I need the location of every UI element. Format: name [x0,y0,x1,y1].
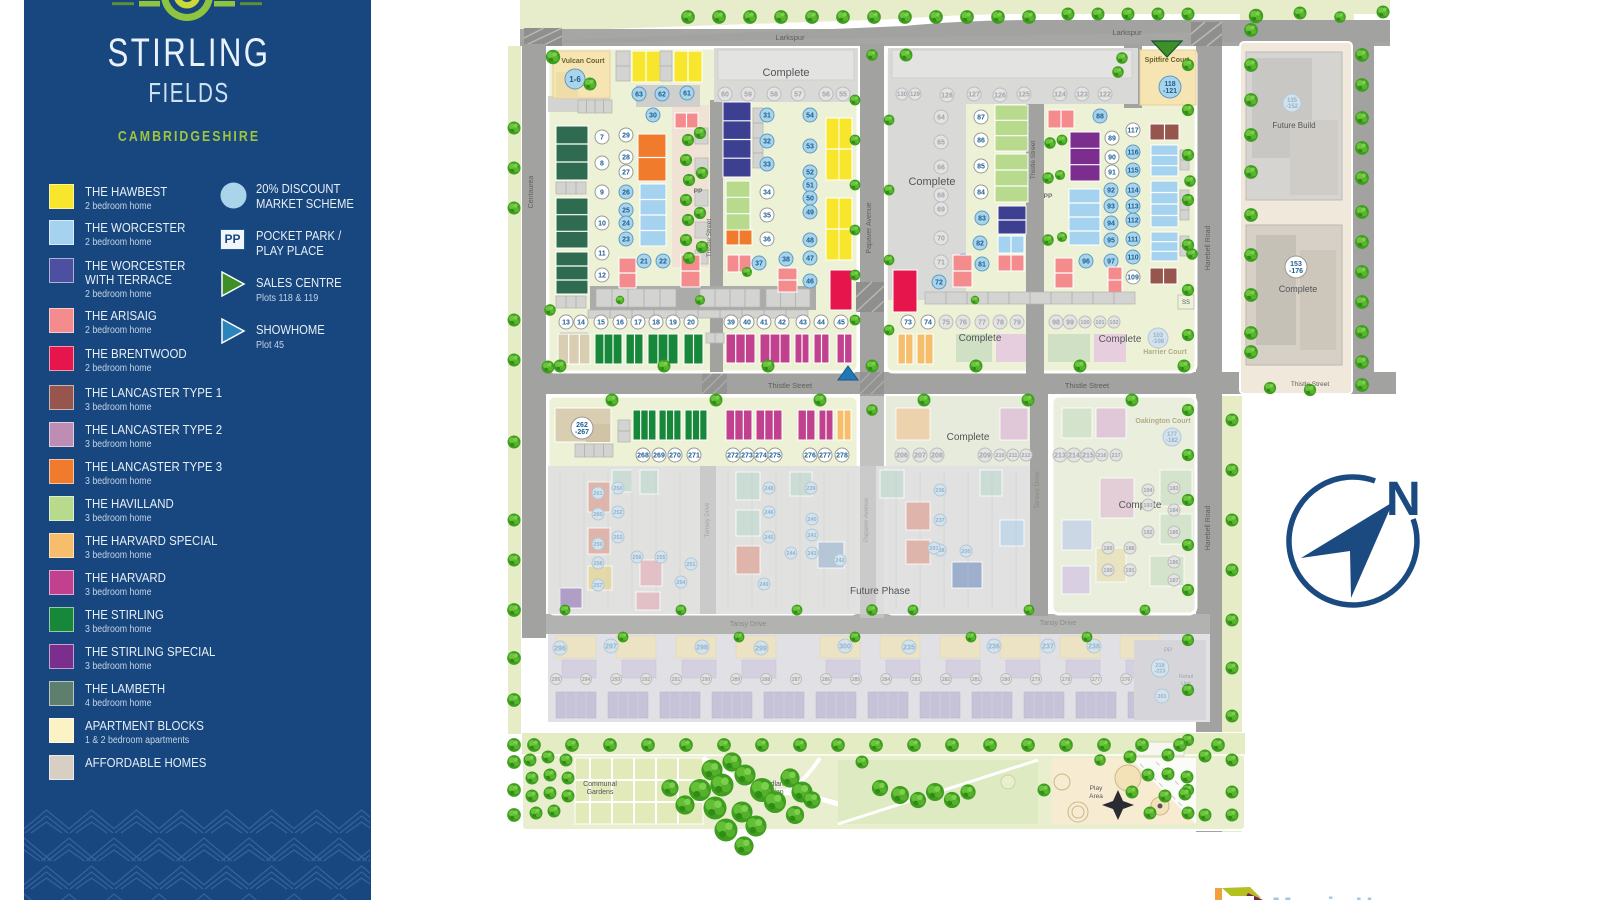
svg-text:290: 290 [702,677,711,683]
svg-text:74: 74 [924,320,932,327]
svg-text:Complete: Complete [908,176,955,188]
svg-text:69: 69 [937,207,945,214]
svg-text:85: 85 [977,164,985,171]
svg-text:288: 288 [762,677,771,683]
svg-text:299: 299 [755,646,767,653]
svg-text:66: 66 [937,165,945,172]
svg-text:268: 268 [637,453,649,460]
svg-text:78: 78 [996,320,1004,327]
svg-text:38: 38 [782,257,790,264]
svg-text:96: 96 [1082,259,1090,266]
svg-text:Area: Area [1089,793,1103,800]
svg-text:79: 79 [1013,320,1021,327]
svg-text:260: 260 [593,512,602,518]
svg-text:33: 33 [763,162,771,169]
svg-text:70: 70 [937,236,945,243]
svg-text:209: 209 [979,453,991,460]
svg-text:201: 201 [929,546,938,552]
svg-text:298: 298 [696,645,708,652]
svg-text:194: 194 [1143,488,1153,494]
svg-text:12: 12 [598,273,606,280]
svg-text:89: 89 [1108,136,1116,143]
svg-text:301: 301 [1157,694,1166,700]
svg-text:291: 291 [672,677,681,683]
svg-text:N: N [1386,473,1421,526]
svg-text:54: 54 [806,113,814,120]
svg-text:272: 272 [727,453,739,460]
svg-text:Thistle Street: Thistle Street [706,219,713,257]
svg-text:88: 88 [1096,114,1104,121]
svg-text:282: 282 [942,677,951,683]
svg-text:295: 295 [552,677,561,683]
svg-text:Retail: Retail [1179,674,1193,680]
svg-text:237: 237 [1042,644,1054,651]
svg-text:278: 278 [1062,677,1071,683]
svg-text:125: 125 [1018,92,1030,99]
svg-text:261: 261 [593,491,602,497]
svg-text:Tansy Drive: Tansy Drive [1040,620,1077,627]
svg-text:76: 76 [959,320,967,327]
svg-text:Play: Play [1090,785,1103,792]
svg-text:92: 92 [1107,188,1115,195]
svg-text:60: 60 [721,92,729,99]
svg-text:284: 284 [882,677,891,683]
svg-text:13: 13 [562,320,570,327]
svg-text:47: 47 [806,256,814,263]
svg-text:82: 82 [976,241,984,248]
svg-text:34: 34 [763,190,771,197]
svg-text:43: 43 [799,320,807,327]
svg-text:73: 73 [904,320,912,327]
svg-text:Complete: Complete [762,67,809,79]
svg-text:294: 294 [582,677,591,683]
svg-text:18: 18 [652,320,660,327]
svg-text:276: 276 [804,453,816,460]
svg-text:-267: -267 [575,429,589,436]
svg-text:193: 193 [1143,503,1152,509]
svg-text:1-6: 1-6 [569,75,581,84]
svg-text:24: 24 [622,221,630,228]
svg-text:28: 28 [622,155,630,162]
svg-text:130: 130 [897,92,908,98]
svg-text:Morris Homes: Morris Homes [1272,893,1438,900]
svg-text:36: 36 [763,237,771,244]
svg-text:183: 183 [1169,486,1178,492]
svg-text:65: 65 [937,140,945,147]
svg-text:Thistle Street: Thistle Street [768,381,813,390]
svg-text:190: 190 [1103,568,1112,574]
svg-text:Complete: Complete [959,333,1002,344]
svg-text:Future Build: Future Build [1272,121,1315,130]
svg-text:90: 90 [1108,155,1116,162]
svg-text:57: 57 [794,92,802,99]
svg-text:271: 271 [688,453,700,460]
svg-text:109: 109 [1127,275,1139,282]
svg-text:93: 93 [1107,204,1115,211]
svg-text:Thistle Street: Thistle Street [1065,381,1110,390]
svg-text:300: 300 [839,644,851,651]
svg-text:37: 37 [755,261,763,268]
svg-text:269: 269 [653,453,665,460]
svg-text:240: 240 [807,517,816,523]
svg-text:Larkspur: Larkspur [775,33,805,42]
svg-text:153: 153 [1290,261,1302,268]
svg-text:186: 186 [1169,560,1178,566]
svg-text:50: 50 [806,196,814,203]
svg-text:255: 255 [656,555,665,561]
svg-text:280: 280 [1002,677,1011,683]
svg-text:Communal: Communal [583,781,617,788]
svg-text:213: 213 [1054,453,1066,460]
svg-text:123: 123 [1076,92,1088,99]
svg-text:40: 40 [743,320,751,327]
svg-text:22: 22 [659,259,667,266]
svg-text:110: 110 [1127,255,1138,262]
svg-text:Oakington Court: Oakington Court [1135,418,1191,425]
svg-text:41: 41 [760,320,768,327]
svg-text:Complete: Complete [1119,500,1162,511]
svg-text:Complete: Complete [947,432,990,443]
svg-text:254: 254 [676,580,686,586]
svg-text:239: 239 [806,486,815,492]
svg-text:262: 262 [576,422,588,429]
svg-text:207: 207 [914,453,926,460]
svg-text:216: 216 [1097,453,1106,459]
svg-text:200: 200 [961,549,970,555]
svg-text:Centaurea: Centaurea [528,176,535,209]
svg-text:46: 46 [806,279,814,286]
svg-text:99: 99 [1066,320,1074,327]
svg-text:212: 212 [1021,453,1030,459]
svg-text:286: 286 [822,677,831,683]
svg-text:29: 29 [622,133,630,140]
svg-text:274: 274 [755,453,767,460]
svg-text:-121: -121 [1163,88,1177,95]
svg-text:114: 114 [1127,188,1138,195]
svg-text:PP: PP [1044,193,1053,200]
svg-text:241: 241 [807,533,816,539]
svg-text:19: 19 [669,320,677,327]
svg-text:297: 297 [605,644,617,651]
svg-text:113: 113 [1127,204,1138,211]
svg-text:81: 81 [978,262,986,269]
svg-text:126: 126 [994,93,1006,100]
svg-text:20: 20 [687,320,695,327]
svg-text:285: 285 [852,677,861,683]
svg-text:Tansy Drive: Tansy Drive [730,621,767,628]
svg-text:Future Phase: Future Phase [850,586,910,597]
svg-text:Tansey Drive: Tansey Drive [705,502,711,537]
svg-text:252: 252 [613,510,622,516]
svg-text:124: 124 [1054,92,1066,99]
svg-text:292: 292 [642,677,651,683]
svg-text:236: 236 [935,488,944,494]
svg-text:-223: -223 [1154,669,1165,675]
svg-text:259: 259 [593,542,602,548]
svg-text:72: 72 [935,280,943,287]
svg-text:Harebell Road: Harebell Road [1205,506,1212,551]
svg-text:56: 56 [822,92,830,99]
svg-text:86: 86 [977,138,985,145]
svg-text:Tansey Drive: Tansey Drive [1034,471,1041,509]
svg-text:258: 258 [593,561,602,567]
svg-text:21: 21 [640,259,648,266]
svg-text:115: 115 [1127,168,1138,175]
svg-text:257: 257 [593,583,602,589]
svg-text:49: 49 [806,210,814,217]
svg-text:94: 94 [1107,221,1115,228]
svg-text:214: 214 [1068,453,1080,460]
svg-text:Larkspur: Larkspur [1112,28,1142,37]
svg-text:31: 31 [763,113,771,120]
svg-text:Harebell Road: Harebell Road [1205,226,1212,271]
svg-text:Papaver Avenue: Papaver Avenue [864,497,870,542]
svg-text:129: 129 [910,92,921,98]
svg-text:Complete: Complete [1099,334,1142,345]
svg-text:Complete: Complete [1279,284,1318,294]
svg-text:188: 188 [1125,546,1134,552]
svg-text:283: 283 [912,677,921,683]
svg-text:87: 87 [977,115,985,122]
svg-text:26: 26 [622,190,630,197]
svg-text:45: 45 [837,320,845,327]
svg-text:9: 9 [600,190,604,197]
svg-text:58: 58 [770,92,778,99]
svg-text:243: 243 [807,551,816,557]
svg-text:111: 111 [1128,237,1139,244]
svg-text:10: 10 [598,221,606,228]
svg-text:100: 100 [1080,320,1089,326]
svg-text:276: 276 [1122,677,1131,683]
svg-text:59: 59 [744,92,752,99]
svg-text:30: 30 [649,113,657,120]
svg-text:238: 238 [1088,644,1100,651]
svg-text:293: 293 [612,677,621,683]
svg-text:Gardens: Gardens [587,789,614,796]
svg-text:27: 27 [622,170,630,177]
svg-text:217: 217 [1111,453,1120,459]
svg-text:Vulcan Court: Vulcan Court [561,58,605,65]
svg-text:Harrier Court: Harrier Court [1143,349,1187,356]
svg-text:206: 206 [896,453,908,460]
svg-text:Papaver Avenue: Papaver Avenue [866,202,873,253]
svg-text:185: 185 [1169,530,1178,536]
svg-text:32: 32 [763,139,771,146]
svg-text:95: 95 [1107,238,1115,245]
svg-text:42: 42 [778,320,786,327]
svg-text:187: 187 [1169,578,1178,584]
svg-text:242: 242 [835,558,844,564]
svg-text:61: 61 [683,91,691,98]
svg-text:235: 235 [903,645,915,652]
svg-text:277: 277 [1092,677,1101,683]
svg-text:7: 7 [600,135,604,142]
svg-text:84: 84 [977,190,985,197]
svg-text:PP: PP [694,188,703,195]
svg-text:250: 250 [613,486,622,492]
svg-text:62: 62 [658,92,666,99]
svg-text:55: 55 [839,92,847,99]
svg-text:48: 48 [806,238,814,245]
svg-text:77: 77 [978,320,986,327]
svg-text:PP: PP [1164,648,1172,654]
svg-text:210: 210 [995,453,1004,459]
svg-text:52: 52 [806,170,814,177]
svg-text:273: 273 [741,453,753,460]
svg-text:289: 289 [732,677,741,683]
svg-text:51: 51 [806,183,814,190]
svg-text:17: 17 [634,320,642,327]
svg-text:SS: SS [1182,300,1190,306]
svg-text:101: 101 [1095,320,1104,326]
svg-text:-108: -108 [1152,339,1165,345]
svg-text:215: 215 [1082,453,1094,460]
svg-text:71: 71 [937,260,945,267]
svg-text:191: 191 [1125,568,1134,574]
svg-text:296: 296 [554,646,566,653]
svg-text:64: 64 [937,115,945,122]
svg-text:127: 127 [968,92,980,99]
svg-text:275: 275 [769,453,781,460]
svg-text:23: 23 [622,237,630,244]
svg-text:-176: -176 [1289,268,1303,275]
svg-text:244: 244 [786,551,796,557]
svg-text:270: 270 [669,453,681,460]
svg-text:277: 277 [819,453,831,460]
svg-text:211: 211 [1009,453,1018,459]
svg-text:15: 15 [597,320,605,327]
svg-text:118: 118 [1164,81,1175,88]
svg-text:63: 63 [635,92,643,99]
svg-text:91: 91 [1108,170,1116,177]
svg-text:249: 249 [759,582,768,588]
svg-text:25: 25 [622,208,630,215]
svg-text:192: 192 [1143,530,1152,536]
svg-text:-152: -152 [1286,104,1299,110]
svg-text:35: 35 [763,213,771,220]
svg-text:39: 39 [727,320,735,327]
svg-text:97: 97 [1107,259,1115,266]
svg-text:68: 68 [937,193,945,200]
svg-text:278: 278 [836,453,848,460]
svg-text:256: 256 [632,555,641,561]
svg-text:184: 184 [1169,508,1179,514]
svg-text:287: 287 [792,677,801,683]
svg-text:Thistle Street: Thistle Street [1030,141,1037,179]
svg-text:279: 279 [1032,677,1041,683]
svg-text:83: 83 [978,216,986,223]
svg-text:208: 208 [931,453,943,460]
svg-text:128: 128 [941,93,953,100]
svg-text:98: 98 [1052,320,1060,327]
svg-text:189: 189 [1103,546,1112,552]
svg-text:112: 112 [1127,218,1138,225]
svg-text:253: 253 [613,535,622,541]
svg-text:16: 16 [616,320,624,327]
svg-text:44: 44 [817,320,825,327]
svg-text:-182: -182 [1166,438,1179,444]
svg-text:246: 246 [764,510,773,516]
svg-text:11: 11 [598,251,606,258]
svg-text:237: 237 [935,518,944,524]
svg-text:236: 236 [988,644,1000,651]
svg-text:248: 248 [764,486,773,492]
svg-text:14: 14 [577,320,585,327]
svg-text:281: 281 [972,677,981,683]
svg-text:116: 116 [1127,150,1138,157]
svg-text:251: 251 [686,562,695,568]
svg-text:245: 245 [764,535,773,541]
svg-text:117: 117 [1127,128,1138,135]
svg-text:75: 75 [942,320,950,327]
svg-text:102: 102 [1109,320,1118,326]
svg-text:8: 8 [600,161,604,168]
svg-text:53: 53 [806,144,814,151]
svg-text:122: 122 [1099,92,1111,99]
